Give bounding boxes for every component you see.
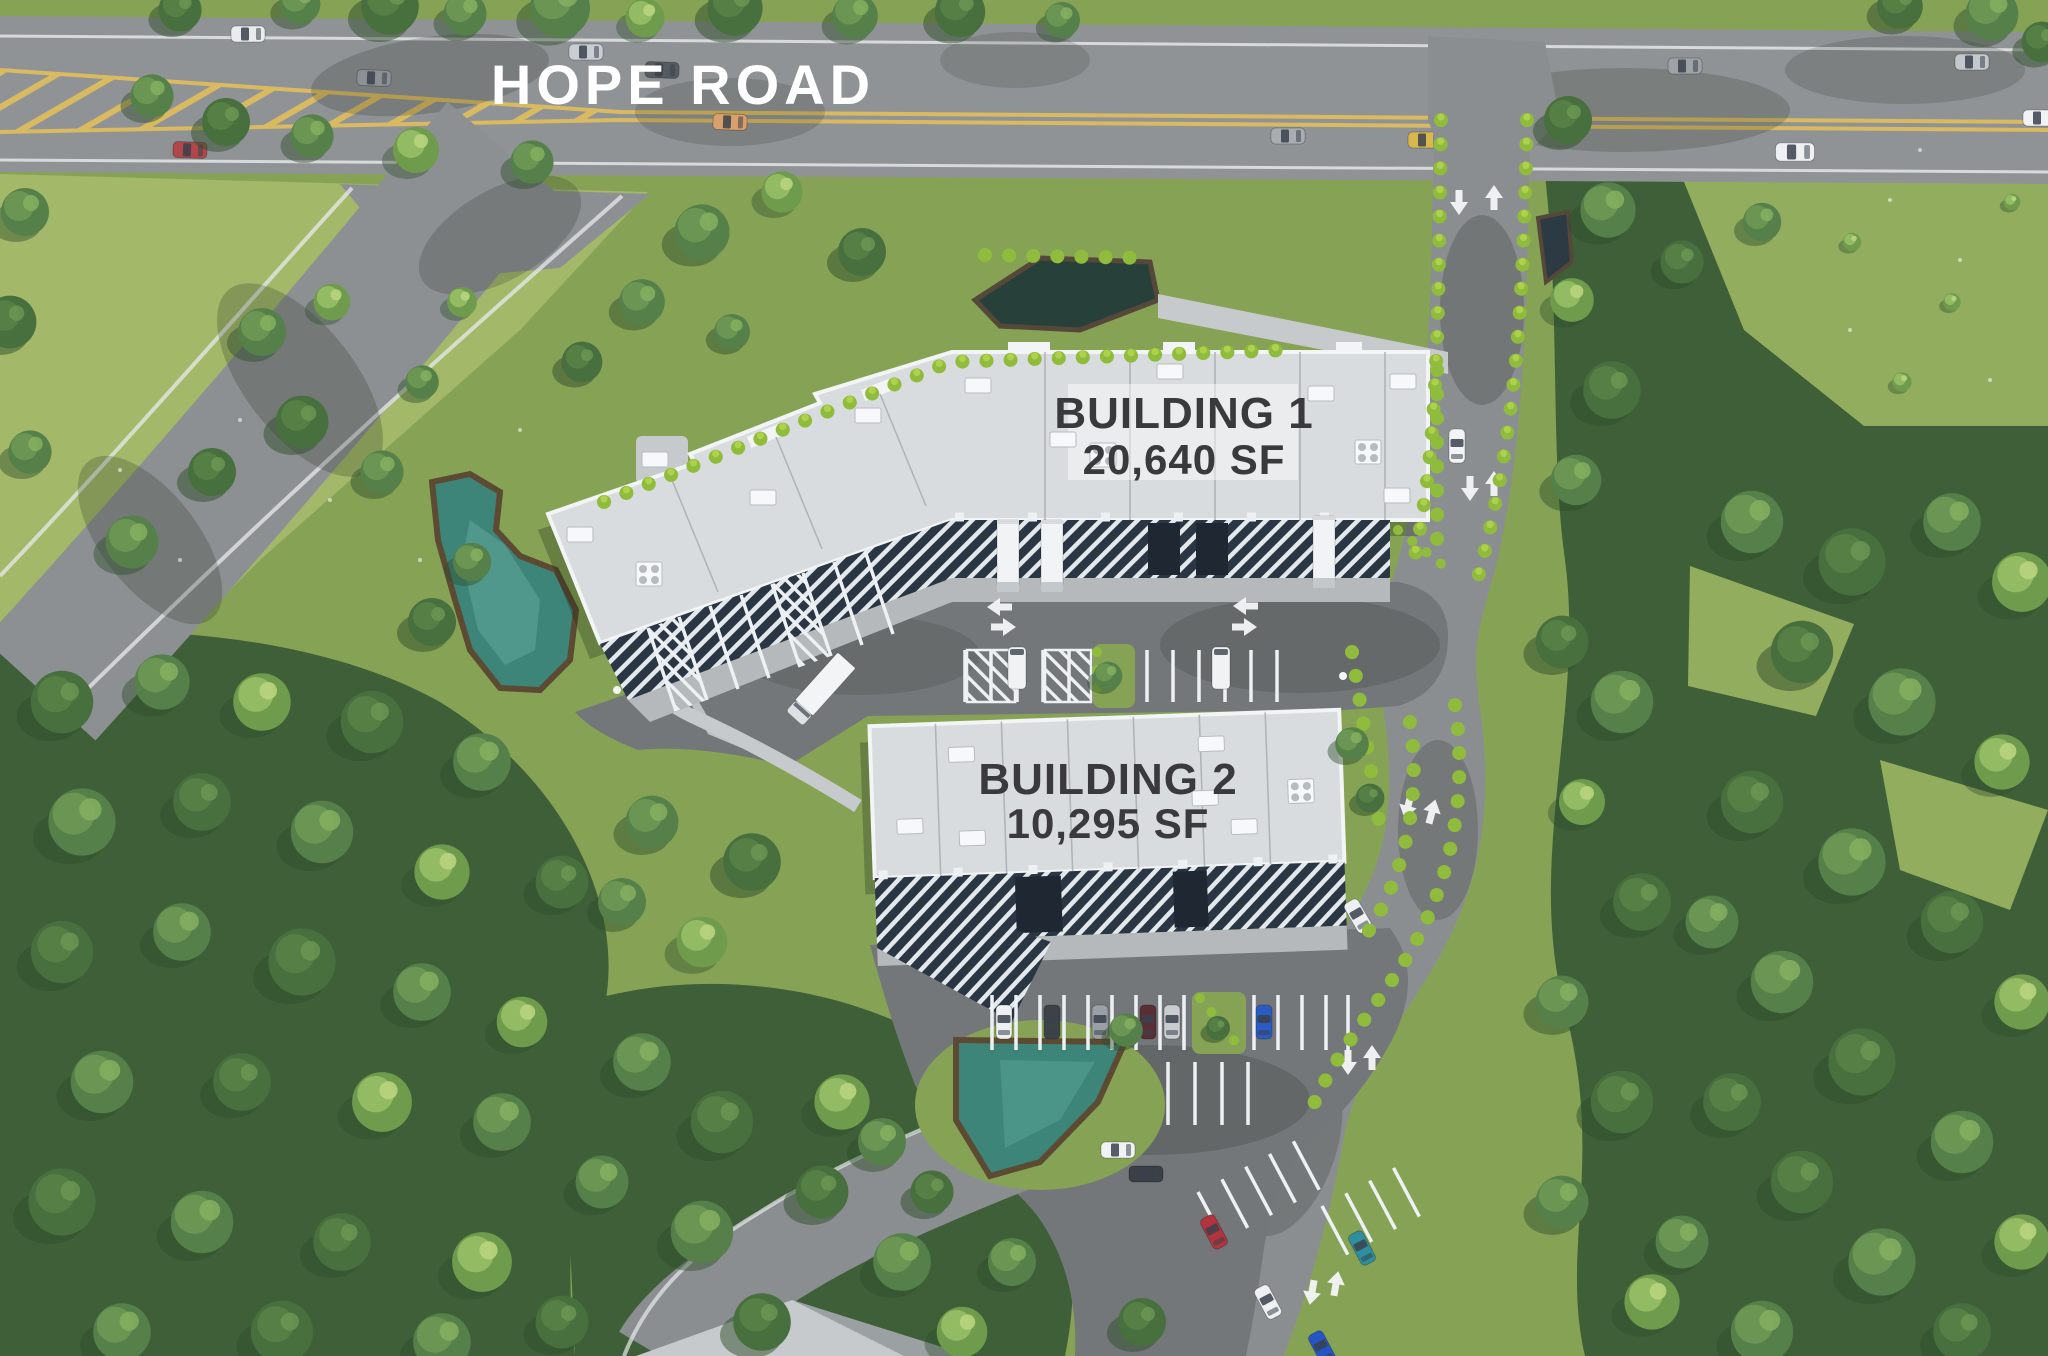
- dock-bay: [1015, 876, 1063, 934]
- building-1-label: BUILDING 1 20,640 SF: [1054, 389, 1313, 483]
- driving-car: [1449, 429, 1465, 463]
- building-1-name: BUILDING 1: [1054, 389, 1313, 438]
- no-park-hatch: [1045, 650, 1091, 702]
- car: [2023, 110, 2048, 126]
- building-1-area: 20,640 SF: [1083, 436, 1286, 483]
- dock-bay: [1173, 870, 1209, 927]
- docked-trailer: [997, 520, 1019, 592]
- car: [357, 69, 392, 86]
- hope-road-label: HOPE ROAD: [491, 53, 875, 116]
- parked-car: [1140, 1005, 1156, 1039]
- car: [1668, 58, 1702, 74]
- parked-car: [1256, 1005, 1272, 1039]
- docked-trailer: [1041, 520, 1063, 592]
- car: [1271, 128, 1305, 144]
- site-plan-rendering: HOPE ROAD BUILDING 1 20,640 SF BUILDING …: [0, 0, 2048, 1356]
- street-light: [613, 686, 621, 694]
- building-2-area: 10,295 SF: [1007, 800, 1210, 847]
- parked-car: [996, 1005, 1012, 1039]
- building-2-label: BUILDING 2 10,295 SF: [978, 755, 1237, 847]
- parked-car: [1164, 1005, 1180, 1039]
- rooftop-hvac-quad: [1288, 779, 1315, 804]
- aerial-site-plan: HOPE ROAD BUILDING 1 20,640 SF BUILDING …: [0, 0, 2048, 1356]
- docked-trailer: [1313, 516, 1335, 588]
- parked-van: [1212, 647, 1230, 689]
- building-2-name: BUILDING 2: [978, 755, 1237, 804]
- car: [1955, 54, 1989, 70]
- car: [231, 26, 265, 42]
- parked-suv: [1129, 1166, 1163, 1182]
- parked-van: [1008, 647, 1026, 689]
- dock-bay: [1196, 523, 1228, 575]
- parked-car: [1044, 1005, 1060, 1039]
- dock-bay: [1148, 523, 1180, 575]
- parked-car: [1101, 1142, 1135, 1158]
- van: [1775, 143, 1814, 161]
- street-light: [1339, 672, 1347, 680]
